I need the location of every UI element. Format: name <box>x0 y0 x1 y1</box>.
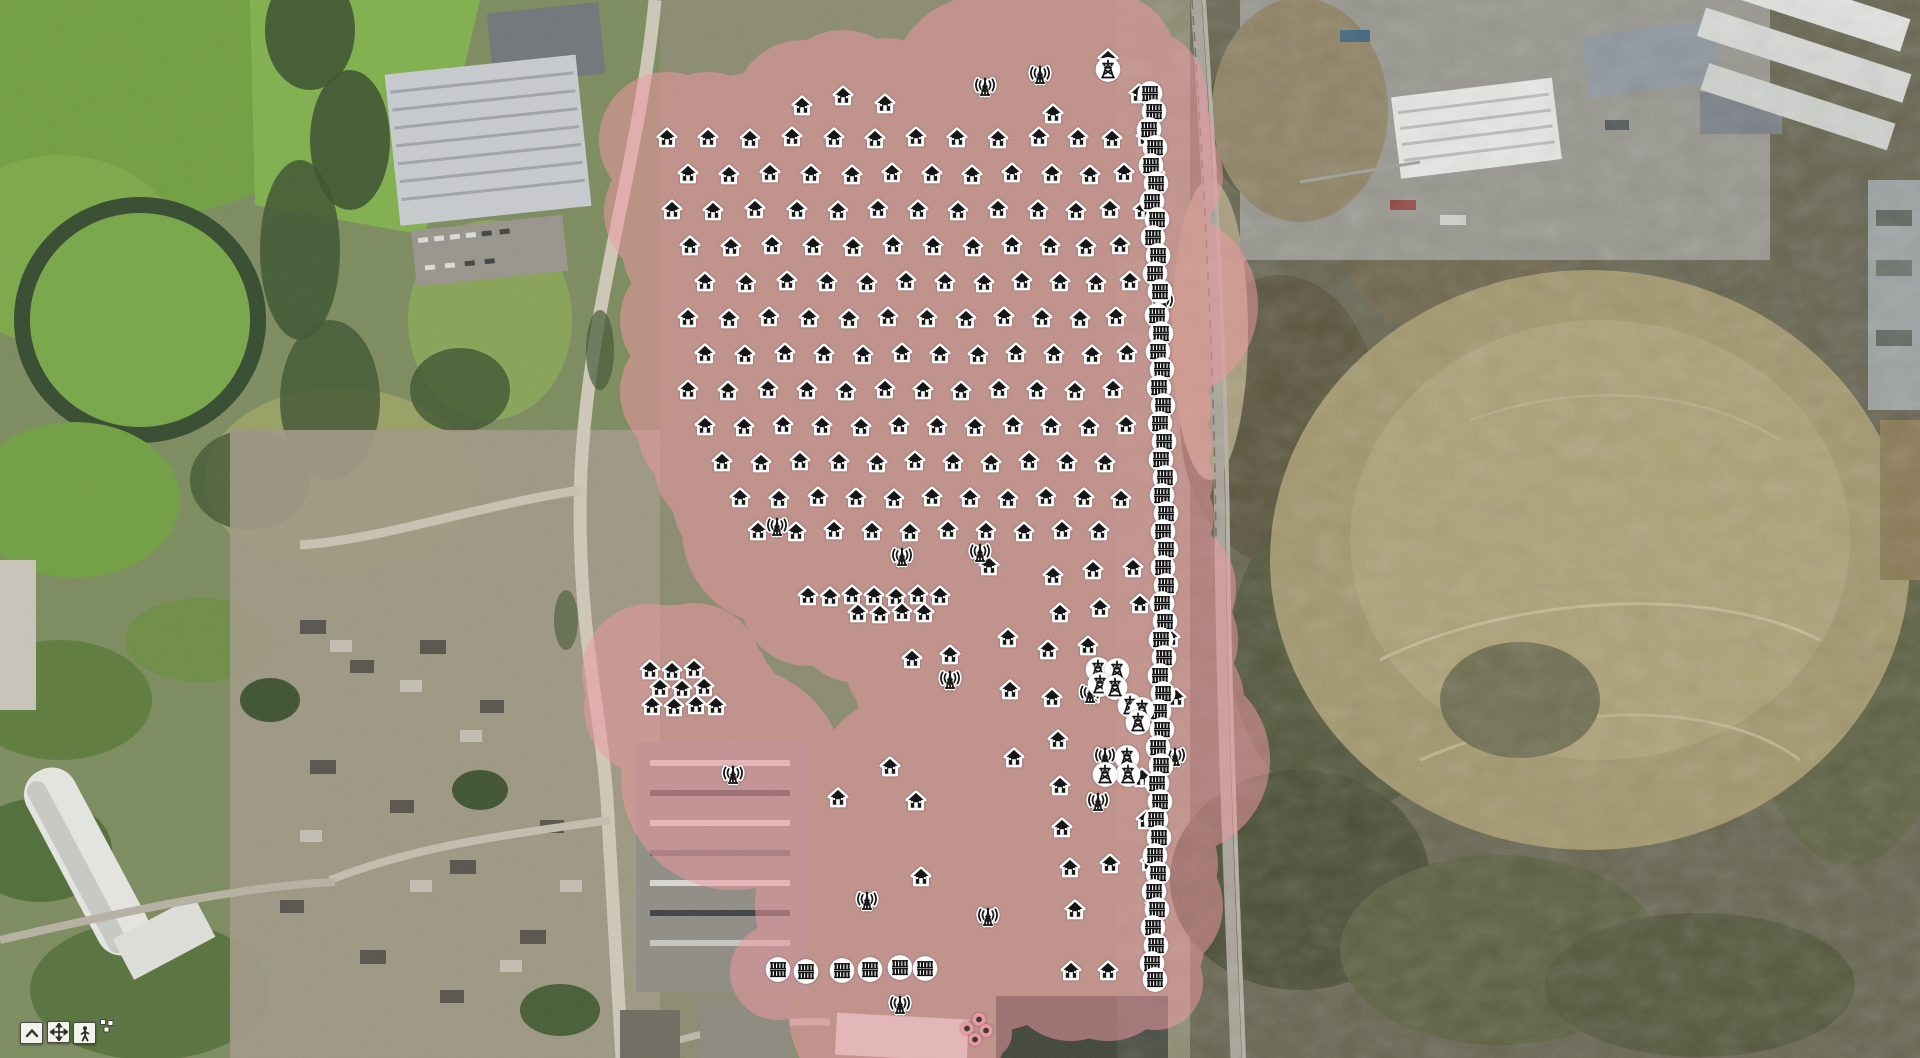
house-marker[interactable] <box>1114 162 1135 188</box>
house-marker[interactable] <box>839 308 860 334</box>
house-marker[interactable] <box>734 416 755 442</box>
house-marker[interactable] <box>875 93 896 119</box>
house-icon <box>797 379 818 400</box>
house-marker[interactable] <box>981 452 1002 478</box>
antenna-marker[interactable] <box>965 542 995 571</box>
house-marker[interactable] <box>642 695 663 721</box>
house-marker[interactable] <box>824 127 845 153</box>
house-marker[interactable] <box>820 586 841 612</box>
house-marker[interactable] <box>843 236 864 262</box>
pan-button[interactable] <box>47 1021 70 1043</box>
house-marker[interactable] <box>718 380 739 406</box>
house-marker[interactable] <box>1100 198 1121 224</box>
antenna-icon <box>965 542 995 566</box>
house-icon <box>906 790 927 811</box>
house-icon <box>908 199 929 220</box>
house-marker[interactable] <box>842 164 863 190</box>
house-icon <box>735 344 756 365</box>
house-marker[interactable] <box>1068 127 1089 153</box>
house-marker[interactable] <box>1032 307 1053 333</box>
panel-grid-marker[interactable] <box>887 955 913 986</box>
house-icon <box>719 164 740 185</box>
house-marker[interactable] <box>1061 960 1082 986</box>
house-icon <box>998 627 1019 648</box>
house-marker[interactable] <box>906 790 927 816</box>
house-marker[interactable] <box>698 127 719 153</box>
chevron-up-icon <box>23 1025 41 1041</box>
house-marker[interactable] <box>662 199 683 225</box>
house-icon <box>1116 414 1137 435</box>
house-marker[interactable] <box>1000 679 1021 705</box>
house-marker[interactable] <box>1117 342 1138 368</box>
house-marker[interactable] <box>1100 853 1121 879</box>
house-marker[interactable] <box>1060 857 1081 883</box>
house-marker[interactable] <box>787 199 808 225</box>
house-marker[interactable] <box>889 414 910 440</box>
house-marker[interactable] <box>1102 128 1123 154</box>
house-icon <box>642 695 663 716</box>
house-marker[interactable] <box>1052 519 1073 545</box>
house-marker[interactable] <box>730 487 751 513</box>
map-viewport[interactable] <box>0 0 1920 1058</box>
house-marker[interactable] <box>927 415 948 441</box>
panel-grid-marker[interactable] <box>857 957 883 988</box>
house-marker[interactable] <box>905 450 926 476</box>
house-marker[interactable] <box>1070 308 1091 334</box>
house-marker[interactable] <box>695 343 716 369</box>
house-icon <box>1078 635 1099 656</box>
house-icon <box>799 307 820 328</box>
pylon-marker[interactable] <box>1125 710 1151 741</box>
house-marker[interactable] <box>1123 557 1144 583</box>
house-icon <box>721 236 742 257</box>
house-icon <box>1089 520 1110 541</box>
house-marker[interactable] <box>777 270 798 296</box>
house-marker[interactable] <box>935 271 956 297</box>
house-icon <box>792 95 813 116</box>
house-marker[interactable] <box>798 585 819 611</box>
house-icon <box>900 521 921 542</box>
panel-grid-icon <box>912 956 938 982</box>
house-icon <box>1003 414 1024 435</box>
house-marker[interactable] <box>882 162 903 188</box>
house-icon <box>824 127 845 148</box>
antenna-marker[interactable] <box>1025 64 1055 93</box>
antenna-marker[interactable] <box>935 669 965 698</box>
house-icon <box>686 694 707 715</box>
house-marker[interactable] <box>775 342 796 368</box>
house-marker[interactable] <box>1090 597 1111 623</box>
house-icon <box>769 488 790 509</box>
house-marker[interactable] <box>965 416 986 442</box>
house-marker[interactable] <box>801 163 822 189</box>
house-marker[interactable] <box>1002 162 1023 188</box>
mini-grid-icon <box>100 1019 114 1033</box>
house-marker[interactable] <box>657 127 678 153</box>
house-marker[interactable] <box>664 696 685 722</box>
house-marker[interactable] <box>1111 488 1132 514</box>
house-marker[interactable] <box>736 272 757 298</box>
house-marker[interactable] <box>1086 272 1107 298</box>
house-marker[interactable] <box>1043 103 1064 129</box>
house-marker[interactable] <box>908 199 929 225</box>
house-icon <box>695 271 716 292</box>
move-arrows-icon <box>50 1023 68 1041</box>
house-marker[interactable] <box>989 378 1010 404</box>
house-marker[interactable] <box>880 756 901 782</box>
house-icon <box>762 234 783 255</box>
house-marker[interactable] <box>913 379 934 405</box>
house-icon <box>759 306 780 327</box>
house-marker[interactable] <box>817 271 838 297</box>
house-marker[interactable] <box>923 235 944 261</box>
house-marker[interactable] <box>735 344 756 370</box>
house-marker[interactable] <box>947 127 968 153</box>
house-marker[interactable] <box>922 163 943 189</box>
house-icon <box>988 198 1009 219</box>
house-marker[interactable] <box>1066 200 1087 226</box>
house-icon <box>745 198 766 219</box>
house-marker[interactable] <box>814 343 835 369</box>
house-marker[interactable] <box>1048 729 1069 755</box>
house-icon <box>1074 487 1095 508</box>
house-marker[interactable] <box>828 787 849 813</box>
house-marker[interactable] <box>1110 234 1131 260</box>
house-marker[interactable] <box>1052 817 1073 843</box>
pylon-icon <box>1095 57 1121 83</box>
house-marker[interactable] <box>962 164 983 190</box>
house-marker[interactable] <box>1014 521 1035 547</box>
house-marker[interactable] <box>678 379 699 405</box>
house-icon <box>803 235 824 256</box>
house-icon <box>1100 198 1121 219</box>
house-marker[interactable] <box>892 601 913 627</box>
house-icon <box>922 486 943 507</box>
house-icon <box>902 648 923 669</box>
house-marker[interactable] <box>948 200 969 226</box>
panel-grid-icon <box>1147 279 1173 305</box>
house-marker[interactable] <box>857 272 878 298</box>
walk-mode-button[interactable] <box>73 1022 96 1044</box>
marker-layer <box>0 0 1920 1058</box>
house-icon <box>884 488 905 509</box>
house-icon <box>1079 416 1100 437</box>
house-icon <box>703 200 724 221</box>
house-marker[interactable] <box>829 451 850 477</box>
layout-widget-button[interactable] <box>100 1019 114 1033</box>
house-marker[interactable] <box>914 602 935 628</box>
house-marker[interactable] <box>867 452 888 478</box>
house-marker[interactable] <box>848 602 869 628</box>
house-marker[interactable] <box>824 519 845 545</box>
antenna-marker[interactable] <box>762 516 792 545</box>
house-marker[interactable] <box>1098 960 1119 986</box>
house-marker[interactable] <box>797 379 818 405</box>
house-marker[interactable] <box>896 270 917 296</box>
house-icon <box>853 344 874 365</box>
house-marker[interactable] <box>790 450 811 476</box>
house-marker[interactable] <box>762 234 783 260</box>
house-icon <box>1050 271 1071 292</box>
panel-grid-icon <box>793 959 819 985</box>
house-marker[interactable] <box>1057 451 1078 477</box>
house-marker[interactable] <box>812 415 833 441</box>
house-icon <box>1002 234 1023 255</box>
house-marker[interactable] <box>836 380 857 406</box>
house-icon <box>1032 307 1053 328</box>
house-marker[interactable] <box>917 307 938 333</box>
antenna-marker[interactable] <box>885 994 915 1023</box>
house-icon <box>923 235 944 256</box>
house-icon <box>1040 235 1061 256</box>
pylon-marker[interactable] <box>1092 762 1118 793</box>
house-marker[interactable] <box>956 308 977 334</box>
house-icon <box>706 695 727 716</box>
house-marker[interactable] <box>853 344 874 370</box>
house-marker[interactable] <box>758 378 779 404</box>
house-marker[interactable] <box>1130 593 1151 619</box>
house-marker[interactable] <box>803 235 824 261</box>
antenna-icon <box>885 994 915 1018</box>
house-icon <box>892 342 913 363</box>
house-marker[interactable] <box>680 235 701 261</box>
house-marker[interactable] <box>878 306 899 332</box>
house-marker[interactable] <box>865 128 886 154</box>
house-icon <box>842 164 863 185</box>
house-icon <box>960 487 981 508</box>
house-icon <box>1042 163 1063 184</box>
house-marker[interactable] <box>1027 379 1048 405</box>
house-marker[interactable] <box>828 200 849 226</box>
house-icon <box>1110 234 1131 255</box>
house-icon <box>930 343 951 364</box>
house-icon <box>843 236 864 257</box>
antenna-marker[interactable] <box>1083 791 1113 820</box>
house-icon <box>962 164 983 185</box>
house-marker[interactable] <box>1120 270 1141 296</box>
house-marker[interactable] <box>1106 306 1127 332</box>
house-marker[interactable] <box>1006 342 1027 368</box>
house-marker[interactable] <box>868 198 889 224</box>
house-icon <box>836 380 857 401</box>
house-icon <box>829 451 850 472</box>
house-icon <box>862 520 883 541</box>
house-marker[interactable] <box>769 488 790 514</box>
house-icon <box>938 519 959 540</box>
house-marker[interactable] <box>963 236 984 262</box>
house-icon <box>911 866 932 887</box>
house-marker[interactable] <box>721 236 742 262</box>
house-marker[interactable] <box>782 126 803 152</box>
house-marker[interactable] <box>943 451 964 477</box>
dot-marker[interactable] <box>968 1032 983 1052</box>
house-marker[interactable] <box>1050 602 1071 628</box>
house-icon <box>988 128 1009 149</box>
house-icon <box>773 414 794 435</box>
house-marker[interactable] <box>1003 414 1024 440</box>
house-marker[interactable] <box>1004 747 1025 773</box>
house-marker[interactable] <box>862 520 883 546</box>
house-icon <box>1000 679 1021 700</box>
house-marker[interactable] <box>1040 235 1061 261</box>
house-icon <box>1050 602 1071 623</box>
house-marker[interactable] <box>759 306 780 332</box>
house-marker[interactable] <box>1041 415 1062 441</box>
house-icon <box>1061 960 1082 981</box>
house-marker[interactable] <box>883 234 904 260</box>
house-icon <box>1065 380 1086 401</box>
house-marker[interactable] <box>686 694 707 720</box>
collapse-button[interactable] <box>20 1022 43 1044</box>
house-marker[interactable] <box>1076 236 1097 262</box>
pylon-icon <box>1092 762 1118 788</box>
house-marker[interactable] <box>745 198 766 224</box>
house-marker[interactable] <box>808 486 829 512</box>
pylon-marker[interactable] <box>1095 57 1121 88</box>
house-marker[interactable] <box>940 644 961 670</box>
house-marker[interactable] <box>960 487 981 513</box>
house-marker[interactable] <box>773 414 794 440</box>
house-marker[interactable] <box>1042 163 1063 189</box>
house-marker[interactable] <box>906 126 927 152</box>
house-marker[interactable] <box>988 128 1009 154</box>
house-icon <box>1083 559 1104 580</box>
house-marker[interactable] <box>1050 271 1071 297</box>
house-icon <box>1002 162 1023 183</box>
house-icon <box>1130 593 1151 614</box>
house-icon <box>1102 128 1123 149</box>
house-marker[interactable] <box>712 451 733 477</box>
house-icon <box>848 602 869 623</box>
house-marker[interactable] <box>719 308 740 334</box>
house-icon <box>1114 162 1135 183</box>
house-icon <box>976 520 997 541</box>
house-icon <box>981 452 1002 473</box>
house-marker[interactable] <box>740 128 761 154</box>
house-marker[interactable] <box>1065 899 1086 925</box>
house-icon <box>948 200 969 221</box>
house-icon <box>998 488 1019 509</box>
house-marker[interactable] <box>799 307 820 333</box>
house-icon <box>1043 565 1064 586</box>
house-marker[interactable] <box>1050 775 1071 801</box>
house-marker[interactable] <box>678 307 699 333</box>
house-marker[interactable] <box>1065 380 1086 406</box>
house-marker[interactable] <box>938 519 959 545</box>
antenna-marker[interactable] <box>970 76 1000 105</box>
house-marker[interactable] <box>1079 416 1100 442</box>
house-icon <box>828 787 849 808</box>
house-marker[interactable] <box>1002 234 1023 260</box>
house-icon <box>947 127 968 148</box>
house-icon <box>889 414 910 435</box>
house-marker[interactable] <box>988 198 1009 224</box>
house-marker[interactable] <box>1082 344 1103 370</box>
house-marker[interactable] <box>678 163 699 189</box>
house-marker[interactable] <box>833 85 854 111</box>
pylon-marker[interactable] <box>1115 762 1141 793</box>
house-marker[interactable] <box>930 343 951 369</box>
house-marker[interactable] <box>1012 270 1033 296</box>
panel-grid-marker[interactable] <box>829 958 855 989</box>
house-icon <box>935 271 956 292</box>
house-marker[interactable] <box>900 521 921 547</box>
antenna-icon <box>970 76 1000 100</box>
house-marker[interactable] <box>1029 126 1050 152</box>
house-marker[interactable] <box>870 603 891 629</box>
house-marker[interactable] <box>719 164 740 190</box>
house-marker[interactable] <box>1080 164 1101 190</box>
house-marker[interactable] <box>1042 687 1063 713</box>
house-icon <box>914 602 935 623</box>
house-marker[interactable] <box>1019 450 1040 476</box>
house-marker[interactable] <box>884 488 905 514</box>
house-marker[interactable] <box>1028 199 1049 225</box>
house-marker[interactable] <box>892 342 913 368</box>
house-icon <box>680 235 701 256</box>
house-marker[interactable] <box>1083 559 1104 585</box>
house-icon <box>870 603 891 624</box>
house-marker[interactable] <box>902 648 923 674</box>
antenna-marker[interactable] <box>887 546 917 575</box>
house-marker[interactable] <box>792 95 813 121</box>
house-icon <box>740 128 761 149</box>
house-marker[interactable] <box>1095 452 1116 478</box>
house-marker[interactable] <box>1116 414 1137 440</box>
house-marker[interactable] <box>911 866 932 892</box>
house-icon <box>1106 306 1127 327</box>
house-marker[interactable] <box>1074 487 1095 513</box>
house-icon <box>865 128 886 149</box>
house-marker[interactable] <box>951 380 972 406</box>
antenna-marker[interactable] <box>718 764 748 793</box>
house-marker[interactable] <box>875 378 896 404</box>
house-marker[interactable] <box>1036 486 1057 512</box>
house-marker[interactable] <box>1038 639 1059 665</box>
house-marker[interactable] <box>922 486 943 512</box>
house-marker[interactable] <box>760 162 781 188</box>
antenna-marker[interactable] <box>852 890 882 919</box>
house-icon <box>828 200 849 221</box>
house-marker[interactable] <box>703 200 724 226</box>
antenna-marker[interactable] <box>973 906 1003 935</box>
house-marker[interactable] <box>695 271 716 297</box>
house-marker[interactable] <box>1043 565 1064 591</box>
house-marker[interactable] <box>695 415 716 441</box>
house-marker[interactable] <box>1089 520 1110 546</box>
house-icon <box>1038 639 1059 660</box>
house-icon <box>1048 729 1069 750</box>
panel-grid-marker[interactable] <box>793 959 819 990</box>
house-icon <box>782 126 803 147</box>
house-icon <box>968 344 989 365</box>
house-marker[interactable] <box>851 416 872 442</box>
house-marker[interactable] <box>751 452 772 478</box>
house-marker[interactable] <box>1103 378 1124 404</box>
house-marker[interactable] <box>1044 343 1065 369</box>
panel-grid-marker[interactable] <box>1142 967 1168 998</box>
house-marker[interactable] <box>998 488 1019 514</box>
house-marker[interactable] <box>968 344 989 370</box>
house-marker[interactable] <box>706 695 727 721</box>
house-icon <box>1004 747 1025 768</box>
house-marker[interactable] <box>974 272 995 298</box>
house-marker[interactable] <box>994 306 1015 332</box>
house-marker[interactable] <box>998 627 1019 653</box>
panel-grid-marker[interactable] <box>765 957 791 988</box>
panel-grid-marker[interactable] <box>912 956 938 987</box>
house-marker[interactable] <box>846 487 867 513</box>
